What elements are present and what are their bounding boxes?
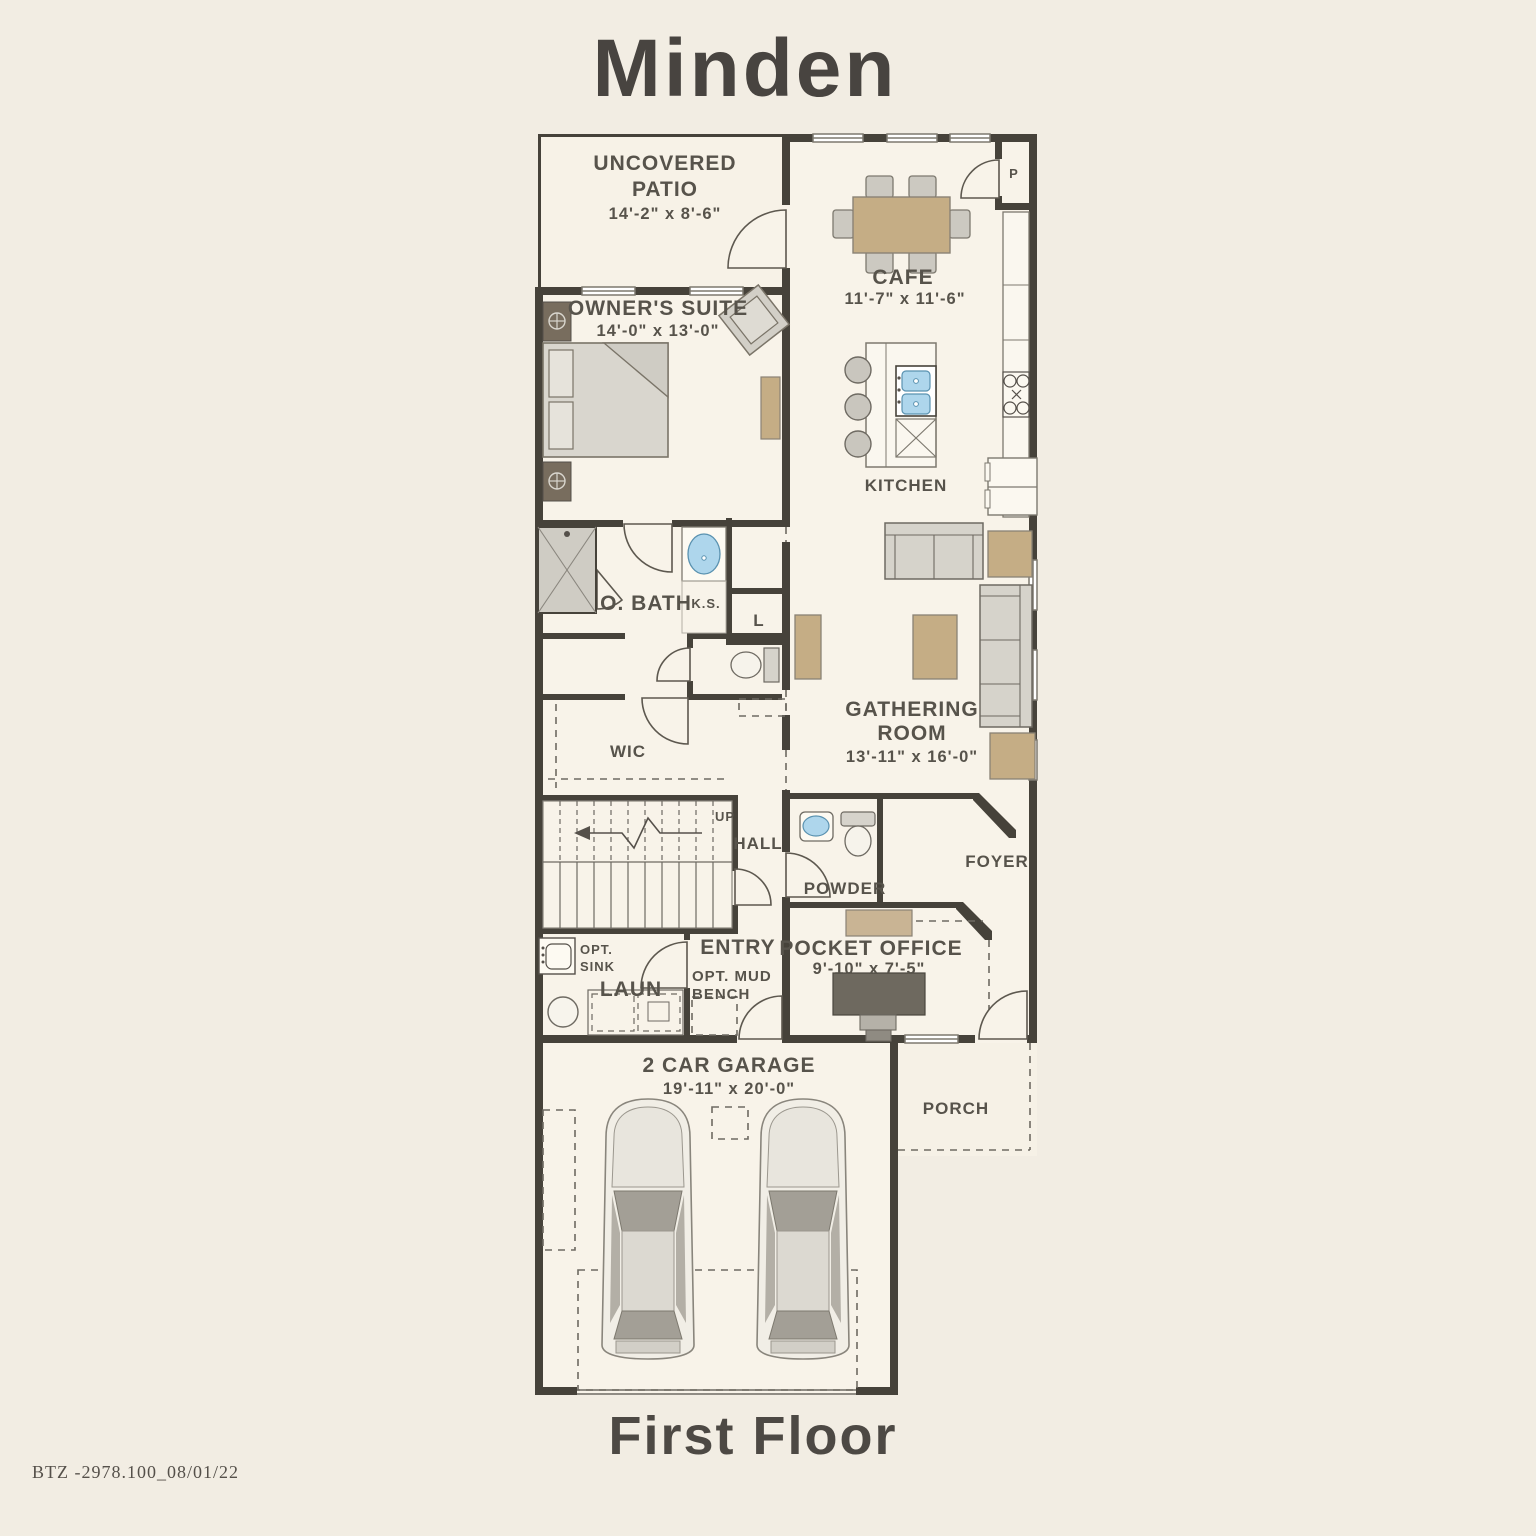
- wic-label: WIC: [610, 742, 646, 761]
- opt-sink-label: OPT.: [580, 942, 613, 957]
- laundry-label: LAUN: [600, 978, 662, 1001]
- garage-dims: 19'-11" x 20'-0": [663, 1080, 795, 1098]
- foyer-label: FOYER: [965, 852, 1029, 871]
- patio-label: PATIO: [632, 178, 698, 201]
- utility-sink-icon: [539, 938, 575, 974]
- island-sink-icon: [896, 366, 936, 416]
- patio-dims: 14'-2" x 8'-6": [609, 205, 722, 223]
- dresser-icon: [761, 377, 780, 439]
- dining-table-icon: [853, 197, 950, 253]
- kitchen-label: KITCHEN: [865, 476, 948, 495]
- stool-icon: [845, 431, 871, 457]
- shower-icon: [538, 527, 596, 613]
- o-bath-label: O. BATH: [600, 592, 692, 615]
- side-table-icon: [990, 733, 1035, 779]
- knee-space-label: K.S.: [691, 596, 720, 611]
- gathering-label: ROOM: [877, 722, 946, 745]
- owners-suite-label: OWNER'S SUITE: [568, 297, 748, 320]
- side-table-icon: [988, 531, 1032, 577]
- pocket-office-label: POCKET OFFICE: [779, 937, 962, 960]
- powder-label: POWDER: [804, 879, 887, 898]
- entry-label: ENTRY: [700, 936, 775, 959]
- bar-stools: [845, 357, 871, 457]
- nightstand-icon: [543, 462, 571, 501]
- cafe-label: CAFE: [872, 266, 933, 289]
- hall-label: HALL: [733, 834, 782, 853]
- powder-sink-icon: [800, 812, 833, 841]
- stairs-up-label: UP: [715, 809, 735, 824]
- gathering-label: GATHERING: [845, 698, 978, 721]
- bed-icon: [543, 343, 668, 457]
- owners-suite-dims: 14'-0" x 13'-0": [597, 322, 720, 340]
- range-icon: [1003, 372, 1029, 417]
- car-icon: [757, 1099, 849, 1359]
- pantry-label: P: [1009, 166, 1019, 181]
- linen-label: L: [753, 611, 764, 630]
- sofa-icon: [980, 585, 1032, 727]
- mud-bench-label: OPT. MUD: [692, 968, 772, 985]
- stool-icon: [845, 357, 871, 383]
- coffee-table-icon: [913, 615, 957, 679]
- opt-sink-label: SINK: [580, 959, 615, 974]
- nightstand-icon: [543, 302, 571, 341]
- porch-label: PORCH: [923, 1099, 989, 1118]
- pocket-office-dims: 9'-10" x 7'-5": [813, 960, 926, 978]
- refrigerator-icon: [985, 458, 1037, 515]
- floor-title: First Floor: [0, 1405, 1506, 1467]
- cafe-dims: 11'-7" x 11'-6": [844, 290, 965, 308]
- car-icon: [602, 1099, 694, 1359]
- garage-label: 2 CAR GARAGE: [642, 1054, 815, 1077]
- washer-icon: [548, 997, 578, 1027]
- gathering-dims: 13'-11" x 16'-0": [846, 748, 978, 766]
- stool-icon: [845, 394, 871, 420]
- console-table-icon: [795, 615, 821, 679]
- loveseat-icon: [885, 523, 983, 579]
- patio-label: UNCOVERED: [593, 152, 736, 175]
- floor-plan-svg: UNCOVERED PATIO 14'-2" x 8'-6" CAFE 11'-…: [0, 0, 1536, 1536]
- desk-icon: [833, 973, 925, 1015]
- plan-code: BTZ -2978.100_08/01/22: [32, 1462, 239, 1483]
- mud-bench-label: BENCH: [692, 986, 750, 1003]
- office-shelf-icon: [846, 910, 912, 936]
